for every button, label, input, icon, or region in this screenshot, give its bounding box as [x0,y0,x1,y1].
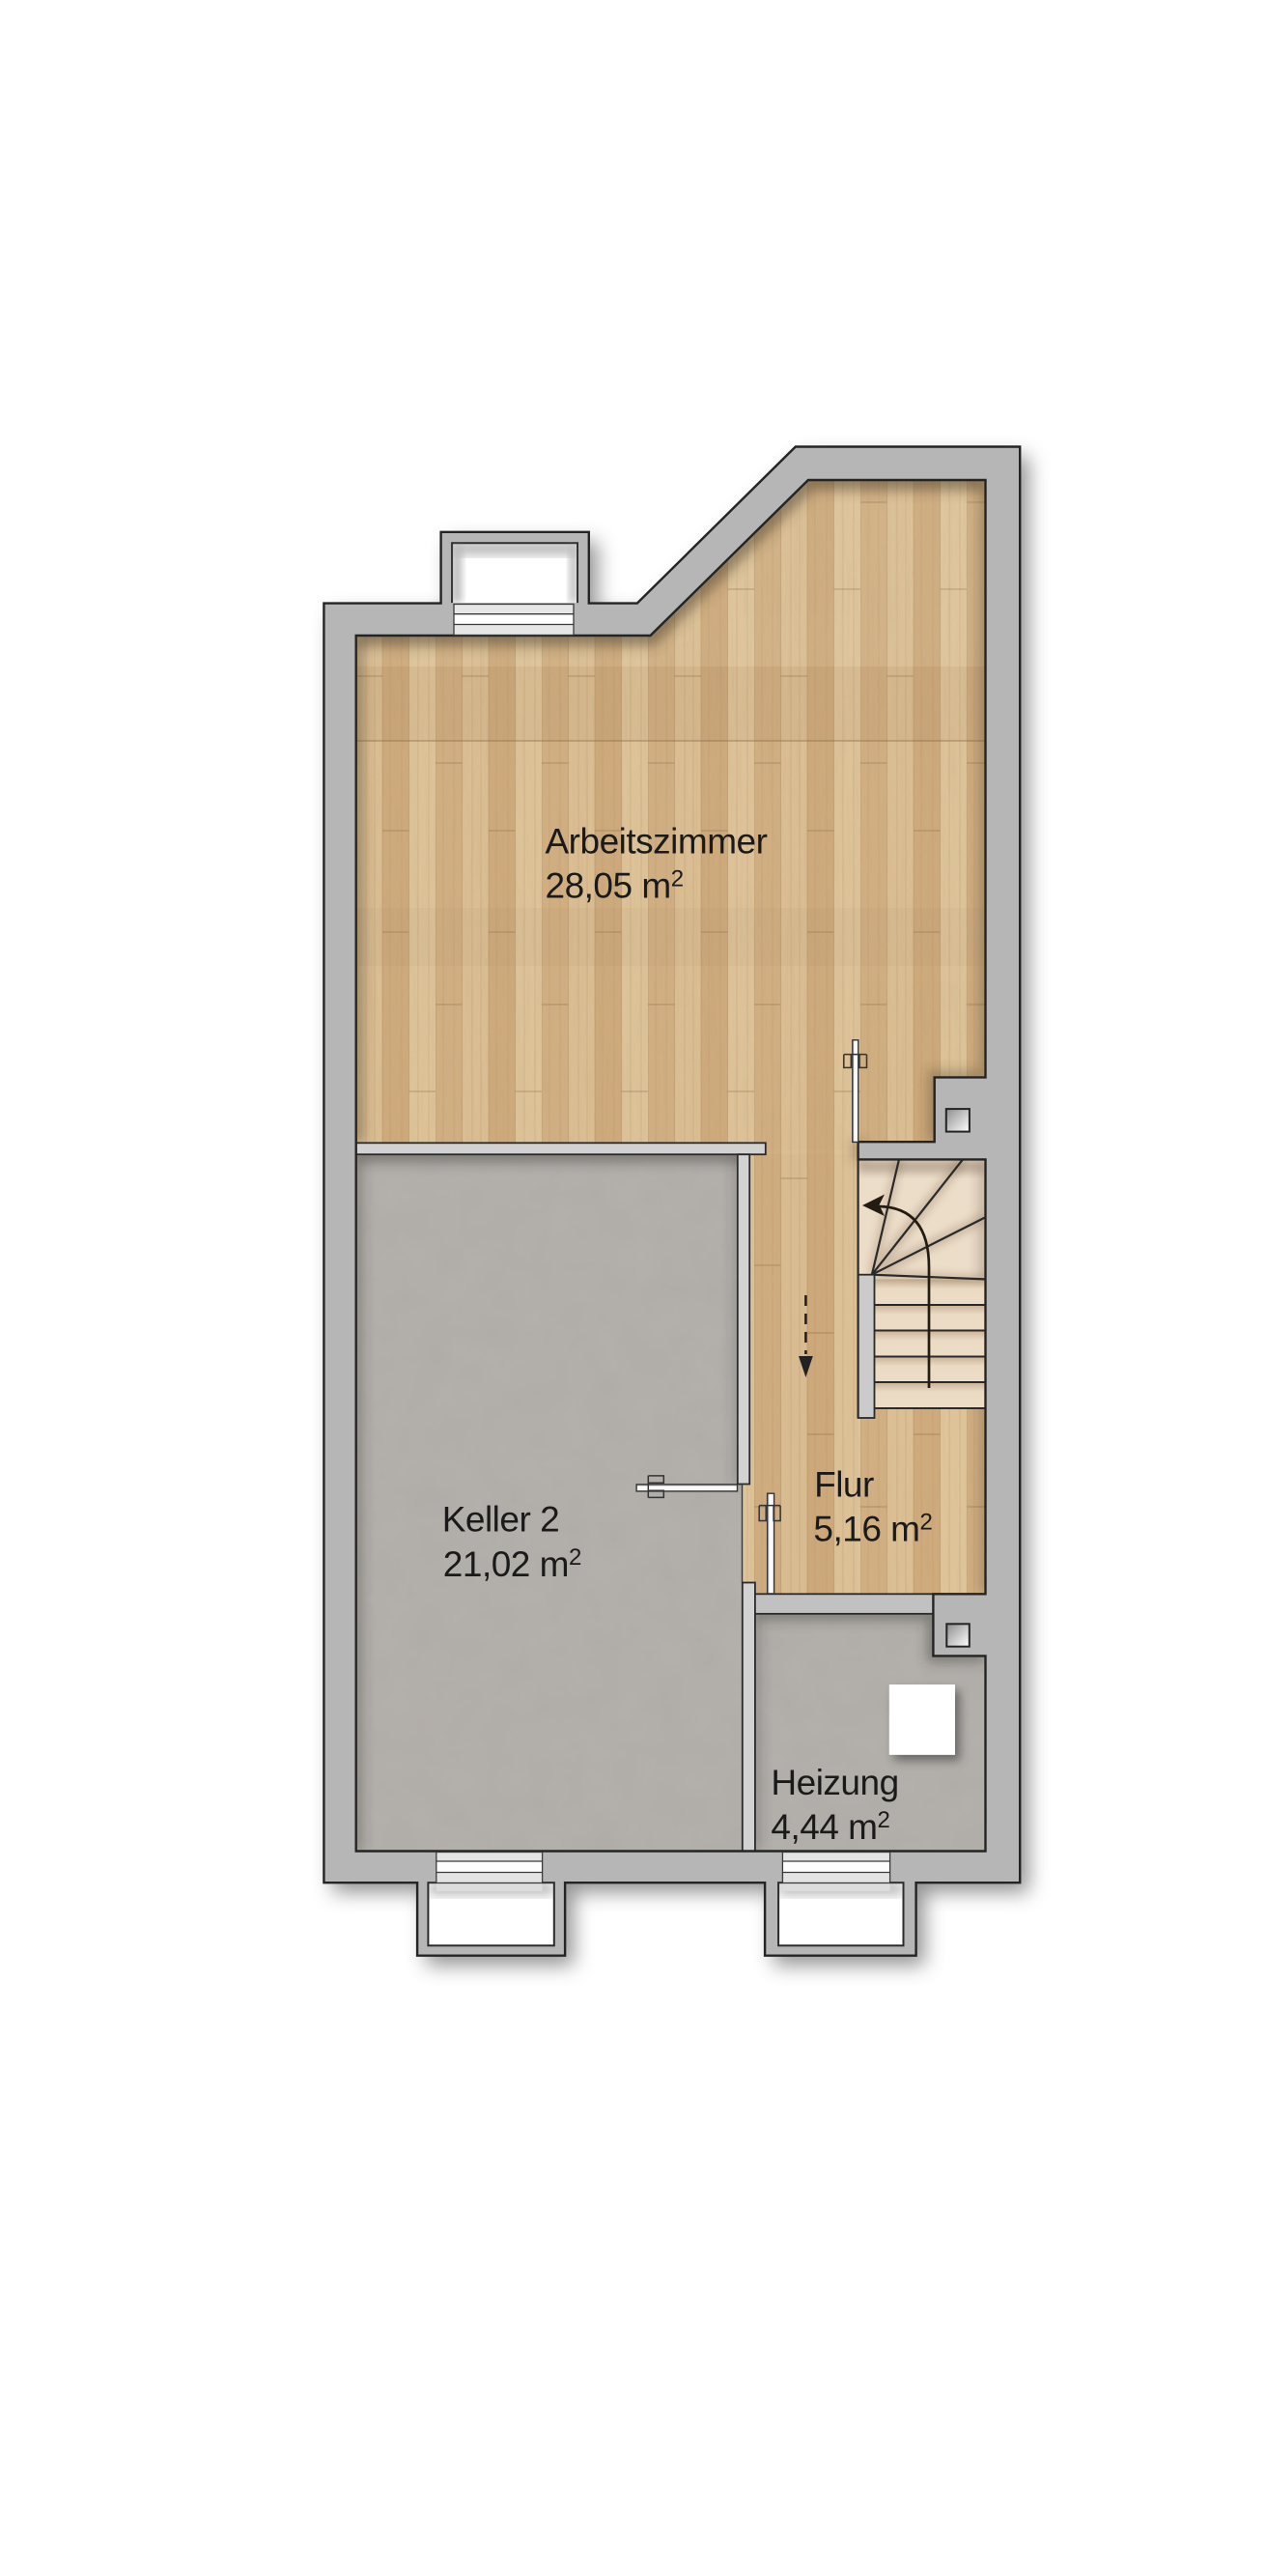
svg-text:Arbeitszimmer: Arbeitszimmer [546,822,768,862]
svg-text:4,44 m2: 4,44 m2 [771,1807,889,1847]
svg-text:21,02 m2: 21,02 m2 [443,1544,581,1584]
svg-text:5,16 m2: 5,16 m2 [813,1510,932,1549]
svg-text:28,05 m2: 28,05 m2 [546,866,684,906]
svg-text:Flur: Flur [814,1465,874,1505]
svg-text:Heizung: Heizung [771,1763,898,1802]
svg-text:Keller 2: Keller 2 [442,1499,559,1539]
